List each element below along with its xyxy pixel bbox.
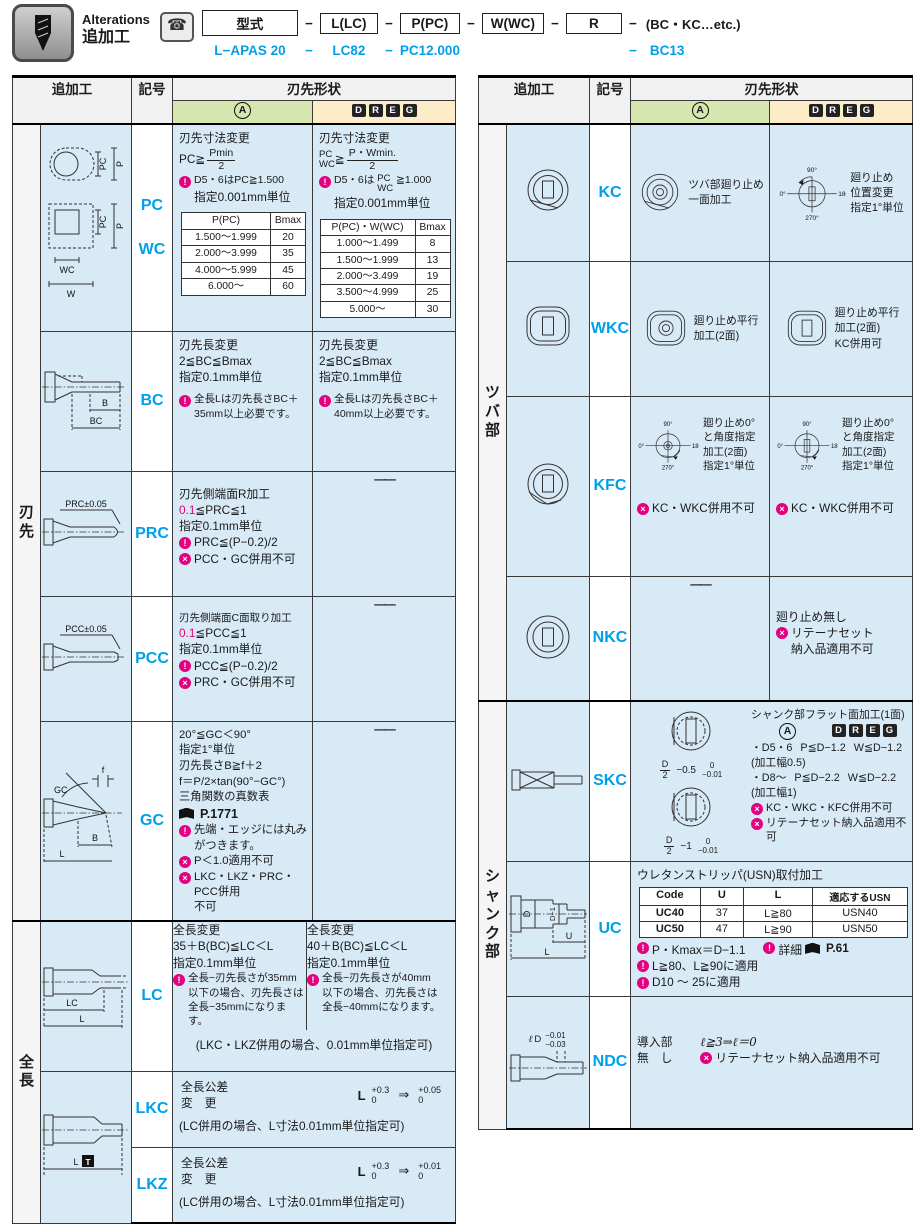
- svg-text:U: U: [566, 931, 573, 941]
- r-box: R: [566, 13, 622, 34]
- symbol-kc: KC: [590, 124, 631, 261]
- alterations-icon: [12, 4, 74, 62]
- l-box: L(LC): [320, 13, 378, 34]
- symbol-uc: UC: [590, 861, 631, 996]
- svg-text:180°: 180°: [692, 444, 699, 450]
- symbol-ndc: NDC: [590, 996, 631, 1129]
- lc-dreg-text: 全長変更 40＋B(BC)≦LC＜L 指定0.1mm単位 全長−刃先長さが40m…: [306, 922, 455, 1030]
- row-pc-wc: 刃先 PC P PC P WC W PC WC 刃先寸法変更 PC≧Pmin2 …: [13, 124, 456, 331]
- symbol-wkc: WKC: [590, 261, 631, 396]
- svg-text:PC: PC: [98, 158, 108, 171]
- kfc-dreg-angle-diagram: 90° 0° 180° 270°: [776, 417, 838, 473]
- svg-text:180°: 180°: [831, 444, 838, 450]
- group-hasaki: 刃先: [13, 124, 41, 921]
- symbol-gc: GC: [132, 721, 173, 921]
- header-kigo: 記号: [132, 77, 173, 125]
- nkc-flange-diagram: [521, 610, 575, 664]
- header-tsuikako: 追加工: [13, 77, 132, 125]
- pc-wc-diagram-cell: PC P PC P WC W: [41, 124, 132, 331]
- type-a-icon: A: [234, 102, 251, 119]
- type-g-icon: G: [403, 104, 417, 117]
- svg-text:0°: 0°: [780, 190, 787, 198]
- bc-dreg-cell: 刃先長変更 2≦BC≦Bmax 指定0.1mm単位 全長Lは刃先長さBC＋ 40…: [313, 331, 456, 471]
- pc-wc-a-cell: 刃先寸法変更 PC≧Pmin2 D5・6はPC≧1.500 指定0.001mm単…: [173, 124, 313, 331]
- svg-text:0°: 0°: [638, 444, 644, 450]
- nkc-dreg-cell: 廻り止め無し リテーナセット 納入品適用不可: [770, 576, 913, 701]
- w-box: W(WC): [482, 13, 544, 34]
- pc-wc-dreg-cell: 刃先寸法変更 PCWC≧P・Wmin.2 D5・6はPCWC≧1.000 指定0…: [313, 124, 456, 331]
- type-e-icon: E: [386, 104, 400, 117]
- row-nkc: NKC —— 廻り止め無し リテーナセット 納入品適用不可: [479, 576, 913, 701]
- svg-text:L: L: [79, 1014, 84, 1024]
- example-bc: BC13: [644, 43, 741, 58]
- svg-text:L: L: [73, 1157, 78, 1167]
- type-g-icon: G: [883, 724, 897, 737]
- caution-icon: [179, 660, 191, 672]
- skc-section1-diagram: [659, 707, 723, 757]
- symbol-lkc: LKC: [132, 1071, 173, 1147]
- title-en: Alterations: [82, 12, 150, 28]
- page-ref-icon: [179, 808, 194, 819]
- pcc-diagram: PCC±0.05: [42, 622, 130, 692]
- lkc-content-cell: 全長公差変 更 L+0.30⇒+0.050 (LC併用の場合、L寸法0.01mm…: [173, 1071, 456, 1147]
- gc-diagram: GC f B L: [42, 763, 130, 875]
- row-pcc: PCC±0.05 PCC 刃先側端面C面取り加工 0.1≦PCC≦1 指定0.1…: [13, 596, 456, 721]
- p-box: P(PC): [400, 13, 460, 34]
- type-r-icon: R: [849, 724, 863, 737]
- row-kc: ツバ部 KC ツバ部廻り止め 一面加工: [479, 124, 913, 261]
- caution-icon: [179, 395, 191, 407]
- svg-text:180°: 180°: [839, 190, 847, 198]
- kc-a-diagram: [636, 169, 684, 217]
- bc-a-cell: 刃先長変更 2≦BC≦Bmax 指定0.1mm単位 全長Lは刃先長さBC＋ 35…: [173, 331, 313, 471]
- prohibit-icon: [179, 553, 191, 565]
- svg-text:P: P: [115, 223, 125, 229]
- caution-icon: [637, 960, 649, 972]
- caution-icon: [307, 974, 319, 986]
- lc-note: (LKC・LKZ併用の場合、0.01mm単位指定可): [173, 1038, 455, 1053]
- ndc-content-cell: 導入部 無 し ℓ≧3⇒ℓ＝0 リテーナセット納入品適用不可: [631, 996, 913, 1129]
- lkc-tolerance: L+0.30⇒+0.050: [358, 1085, 443, 1106]
- bc-diagram: B BC: [42, 356, 130, 444]
- wkc-shape-cell: [507, 261, 590, 396]
- symbol-nkc: NKC: [590, 576, 631, 701]
- skc-sections: D2−0.50−0.01 D2−10−0.01: [637, 707, 745, 857]
- prohibit-icon: [751, 818, 763, 830]
- header-type-a: A: [173, 101, 313, 125]
- skc-section2-diagram: [659, 783, 723, 833]
- skc-dim1: D2−0.50−0.01: [637, 760, 745, 781]
- svg-text:PC: PC: [98, 216, 108, 229]
- nkc-shape-cell: [507, 576, 590, 701]
- skc-content-cell: D2−0.50−0.01 D2−10−0.01 シャンク部フラット面加工(1面)…: [631, 701, 913, 861]
- type-d-icon: D: [809, 104, 823, 117]
- page-title: Alterations 追加工: [82, 12, 150, 47]
- caution-icon: [173, 974, 185, 986]
- gc-diagram-cell: GC f B L: [41, 721, 132, 921]
- caution-icon: [763, 942, 775, 954]
- kfc-a-cell: 90° 0° 180° 270° 廻り止め0° と角度指定 加工(2面) 指定1…: [631, 396, 770, 576]
- symbol-pcc: PCC: [132, 596, 173, 721]
- type-e-icon: E: [843, 104, 857, 117]
- kfc-shape-cell: [507, 396, 590, 576]
- prohibit-icon: [637, 503, 649, 515]
- skc-punch-diagram: [510, 765, 586, 795]
- prc-a-cell: 刃先側端面R加工 0.1≦PRC≦1 指定0.1mm単位 PRC≦(P−0.2)…: [173, 471, 313, 596]
- caution-icon: [637, 977, 649, 989]
- caution-icon: [637, 942, 649, 954]
- wkc-a-cell: 廻り止め平行 加工(2面): [631, 261, 770, 396]
- svg-text:D−1: D−1: [548, 907, 557, 921]
- svg-text:B: B: [92, 833, 98, 843]
- lkz-content-cell: 全長公差変 更 L+0.30⇒+0.010 (LC併用の場合、L寸法0.01mm…: [173, 1147, 456, 1223]
- gc-dreg-cell: ——: [313, 721, 456, 921]
- row-wkc: WKC 廻り止め平行 加工(2面) 廻り止め平行 加工(2面) KC併用可: [479, 261, 913, 396]
- prc-dreg-cell: ——: [313, 471, 456, 596]
- lc-a-text: 全長変更 35＋B(BC)≦LC＜L 指定0.1mm単位 全長−刃先長さが35m…: [173, 922, 306, 1030]
- wkc-a-diagram: [642, 305, 690, 353]
- pcc-diagram-cell: PCC±0.05: [41, 596, 132, 721]
- example-lc: LC82: [320, 43, 378, 58]
- kc-angle-diagram: 90° 0° 180° 270°: [778, 162, 846, 224]
- type-r-icon: R: [369, 104, 383, 117]
- svg-text:270°: 270°: [801, 466, 814, 472]
- svg-text:BC: BC: [90, 416, 103, 426]
- svg-text:WC: WC: [59, 265, 74, 275]
- ordering-code-formula: 型式 − L(LC) − P(PC) − W(WC) − R − (BC・KC……: [202, 10, 741, 58]
- group-tsuba: ツバ部: [479, 124, 507, 701]
- type-a-icon: A: [779, 723, 796, 740]
- left-alterations-table: 追加工 記号 刃先形状 A DREG 刃先 PC P PC P WC W PC …: [12, 75, 455, 1224]
- prohibit-icon: [776, 503, 788, 515]
- prohibit-icon: [700, 1052, 712, 1064]
- caution-icon: [319, 395, 331, 407]
- svg-text:0°: 0°: [777, 444, 783, 450]
- prc-diagram: PRC±0.05: [42, 497, 130, 567]
- symbol-skc: SKC: [590, 701, 631, 861]
- prohibit-icon: [179, 677, 191, 689]
- svg-text:B: B: [102, 398, 108, 408]
- wkc-dreg-cell: 廻り止め平行 加工(2面) KC併用可: [770, 261, 913, 396]
- symbol-lkz: LKZ: [132, 1147, 173, 1223]
- kc-shape-cell: [507, 124, 590, 261]
- pc-wc-diagram: PC P PC P WC W: [44, 138, 129, 314]
- header-type-dreg: DREG: [313, 101, 456, 125]
- usn-table: Code U L 適応するUSN UC4037 L≧80USN40 UC5047…: [639, 887, 908, 938]
- kc-dreg-cell: 90° 0° 180° 270° 廻り止め 位置変更 指定1°単位: [770, 124, 913, 261]
- symbol-lc: LC: [132, 921, 173, 1071]
- type-g-icon: G: [860, 104, 874, 117]
- prohibit-icon: [179, 872, 191, 884]
- row-lc: 全長 LC L LC 全長変更 35＋B(BC)≦LC＜L 指定0.1mm単位 …: [13, 921, 456, 1071]
- kc-flange-diagram: [521, 164, 575, 218]
- svg-text:90°: 90°: [802, 422, 812, 428]
- svg-text:GC: GC: [54, 785, 68, 795]
- lkz-tolerance: L+0.30⇒+0.010: [358, 1161, 443, 1182]
- svg-text:P: P: [115, 161, 125, 167]
- right-alterations-table: 追加工 記号 刃先形状 A DREG ツバ部 KC ツバ部廻り止め 一面加工: [478, 75, 912, 1130]
- svg-text:90°: 90°: [663, 422, 673, 428]
- kfc-dreg-cell: 90° 0° 180° 270° 廻り止め0° と角度指定 加工(2面) 指定1…: [770, 396, 913, 576]
- gc-a-cell: 20°≦GC＜90° 指定1°単位 刃先長さB≧f＋2 f＝P/2×tan(90…: [173, 721, 313, 921]
- lkc-note: (LC併用の場合、L寸法0.01mm単位指定可): [179, 1119, 451, 1134]
- kfc-a-angle-diagram: 90° 0° 180° 270°: [637, 417, 699, 473]
- symbol-kfc: KFC: [590, 396, 631, 576]
- skc-shape-cell: [507, 701, 590, 861]
- lc-diagram: LC L: [42, 956, 130, 1034]
- header-hasaki-keijo: 刃先形状: [631, 77, 913, 101]
- svg-text:W: W: [66, 289, 75, 299]
- row-kfc: KFC 90° 0° 180° 270° 廻り止め0° と角度指定 加工(2面)…: [479, 396, 913, 576]
- skc-text: シャンク部フラット面加工(1面) A DREG ・D5・6P≦D−1.2W≦D−…: [751, 707, 908, 857]
- lk-diagram: L T: [42, 1105, 130, 1187]
- title-ja: 追加工: [82, 28, 150, 47]
- model-box: 型式: [202, 10, 298, 36]
- lkz-note: (LC併用の場合、L寸法0.01mm単位指定可): [179, 1195, 451, 1210]
- symbol-prc: PRC: [132, 471, 173, 596]
- row-lkc: L T LKC 全長公差変 更 L+0.30⇒+0.050 (LC併用の場合、L…: [13, 1071, 456, 1147]
- type-d-icon: D: [352, 104, 366, 117]
- uc-punch-diagram: D D−1 U L: [509, 886, 587, 968]
- svg-text:L: L: [544, 947, 549, 957]
- example-model: L−APAS 20: [202, 43, 298, 58]
- type-d-icon: D: [832, 724, 846, 737]
- caution-icon: [319, 176, 331, 188]
- type-e-icon: E: [866, 724, 880, 737]
- pcc-a-cell: 刃先側端面C面取り加工 0.1≦PCC≦1 指定0.1mm単位 PCC≦(P−0…: [173, 596, 313, 721]
- type-r-icon: R: [826, 104, 840, 117]
- kfc-flange-diagram: [521, 458, 575, 512]
- svg-text:PRC±0.05: PRC±0.05: [65, 499, 106, 509]
- row-uc: D D−1 U L UC ウレタンストリッパ(USN)取付加工 Code U L…: [479, 861, 913, 996]
- row-prc: PRC±0.05 PRC 刃先側端面R加工 0.1≦PRC≦1 指定0.1mm単…: [13, 471, 456, 596]
- punch-icon: [25, 13, 61, 53]
- header-kigo: 記号: [590, 77, 631, 125]
- uc-shape-cell: D D−1 U L: [507, 861, 590, 996]
- header-type-dreg: DREG: [770, 101, 913, 125]
- ndc-shape-cell: ℓ D −0.01−0.03: [507, 996, 590, 1129]
- row-ndc: ℓ D −0.01−0.03 NDC 導入部 無 し ℓ≧3⇒ℓ＝0 リテーナセ…: [479, 996, 913, 1129]
- header-type-a: A: [631, 101, 770, 125]
- caution-icon: [179, 176, 191, 188]
- symbol-pc-wc: PC WC: [132, 124, 173, 331]
- svg-text:LC: LC: [66, 998, 78, 1008]
- pc-bmax-table: P(PC)Bmax 1.500～1.99920 2.000～3.99935 4.…: [181, 212, 306, 295]
- ndc-diagram-labels: ℓ D −0.01−0.03: [507, 1031, 589, 1049]
- page-ref-icon: [805, 943, 820, 954]
- skc-dim2: D2−10−0.01: [637, 836, 745, 857]
- group-shank: シャンク部: [479, 701, 507, 1129]
- page-header: Alterations 追加工 ☎ 型式 − L(LC) − P(PC) − W…: [12, 4, 741, 62]
- wkc-dreg-diagram: [783, 305, 831, 353]
- lc-content-cell: 全長変更 35＋B(BC)≦LC＜L 指定0.1mm単位 全長−刃先長さが35m…: [173, 921, 456, 1071]
- example-pc: PC12.000: [400, 43, 460, 58]
- pcw-bmax-table: P(PC)・W(WC)Bmax 1.000～1.4998 1.500～1.999…: [320, 219, 451, 319]
- group-zencho: 全長: [13, 921, 41, 1223]
- lc-diagram-cell: LC L: [41, 921, 132, 1071]
- prohibit-icon: [179, 856, 191, 868]
- symbol-bc: BC: [132, 331, 173, 471]
- row-bc: B BC BC 刃先長変更 2≦BC≦Bmax 指定0.1mm単位 全長Lは刃先…: [13, 331, 456, 471]
- svg-text:270°: 270°: [805, 214, 819, 222]
- type-a-icon: A: [692, 102, 709, 119]
- svg-text:T: T: [85, 1157, 91, 1167]
- svg-text:90°: 90°: [807, 166, 817, 174]
- prohibit-icon: [751, 803, 763, 815]
- row-gc: GC f B L GC 20°≦GC＜90° 指定1°単位 刃先長さB≧f＋2 …: [13, 721, 456, 921]
- svg-text:PCC±0.05: PCC±0.05: [65, 624, 106, 634]
- lk-diagram-cell: L T: [41, 1071, 132, 1223]
- header-hasaki-keijo: 刃先形状: [173, 77, 456, 101]
- prohibit-icon: [776, 627, 788, 639]
- etc-suffix: (BC・KC…etc.): [644, 14, 741, 33]
- svg-text:f: f: [102, 765, 105, 775]
- bc-diagram-cell: B BC: [41, 331, 132, 471]
- phone-icon: ☎: [160, 12, 194, 42]
- nkc-a-cell: ——: [631, 576, 770, 701]
- pcc-dreg-cell: ——: [313, 596, 456, 721]
- caution-icon: [179, 537, 191, 549]
- uc-content-cell: ウレタンストリッパ(USN)取付加工 Code U L 適応するUSN UC40…: [631, 861, 913, 996]
- row-skc: シャンク部 SKC D2−0.50−0.01: [479, 701, 913, 861]
- prc-diagram-cell: PRC±0.05: [41, 471, 132, 596]
- kc-a-cell: ツバ部廻り止め 一面加工: [631, 124, 770, 261]
- svg-text:270°: 270°: [662, 466, 675, 472]
- svg-text:D: D: [522, 910, 532, 917]
- wkc-flange-diagram: [521, 300, 575, 354]
- ndc-punch-diagram: [509, 1049, 587, 1091]
- svg-text:L: L: [59, 849, 64, 859]
- header-tsuikako: 追加工: [479, 77, 590, 125]
- caution-icon: [179, 825, 191, 837]
